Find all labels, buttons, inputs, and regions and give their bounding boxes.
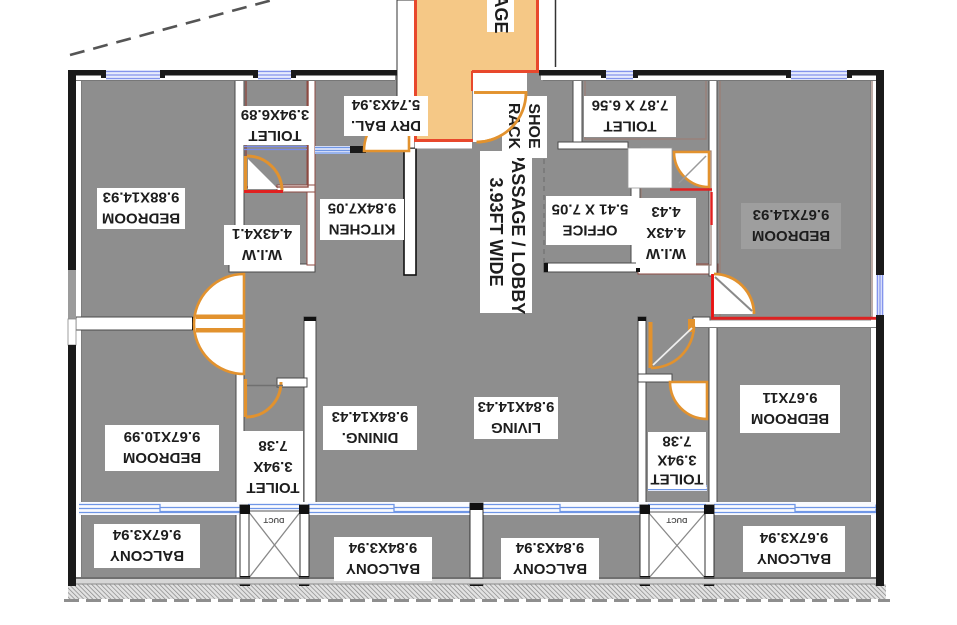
svg-text:DUCT: DUCT [666, 516, 687, 525]
svg-text:DUCT: DUCT [263, 516, 284, 525]
svg-text:AGE: AGE [491, 0, 511, 34]
